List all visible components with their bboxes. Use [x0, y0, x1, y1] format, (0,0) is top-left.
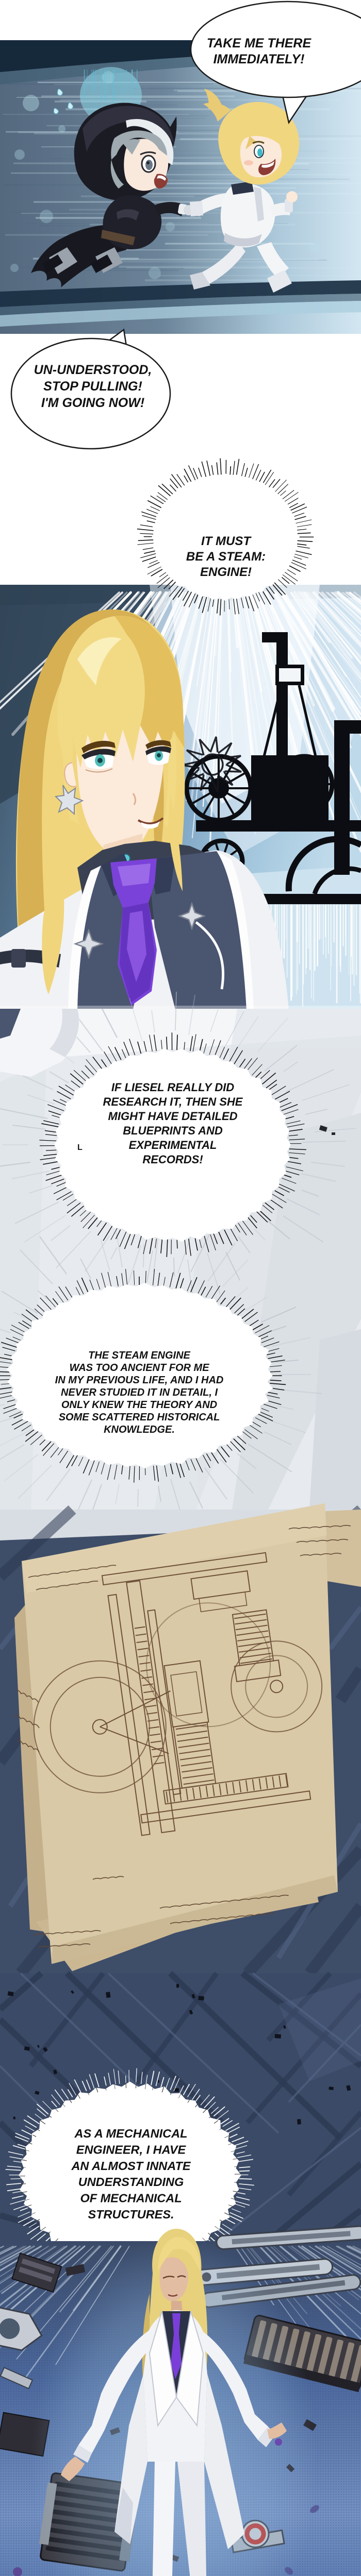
svg-text:RECORDS!: RECORDS!: [142, 1153, 203, 1166]
svg-text:I'M GOING NOW!: I'M GOING NOW!: [41, 396, 144, 410]
svg-text:L: L: [77, 1143, 83, 1152]
svg-text:THE STEAM ENGINE: THE STEAM ENGINE: [88, 1350, 190, 1361]
svg-text:IT MUST: IT MUST: [201, 534, 252, 548]
svg-text:ENGINEER, I HAVE: ENGINEER, I HAVE: [76, 2143, 187, 2156]
svg-text:MIGHT HAVE DETAILED: MIGHT HAVE DETAILED: [108, 1110, 238, 1123]
svg-text:RESEARCH IT, THEN SHE: RESEARCH IT, THEN SHE: [103, 1095, 243, 1108]
svg-text:IF LIESEL REALLY DID: IF LIESEL REALLY DID: [111, 1081, 234, 1094]
svg-text:STOP PULLING!: STOP PULLING!: [43, 379, 142, 394]
svg-text:AN ALMOST INNATE: AN ALMOST INNATE: [71, 2159, 191, 2173]
svg-text:EXPERIMENTAL: EXPERIMENTAL: [129, 1139, 217, 1151]
svg-text:UNDERSTANDING: UNDERSTANDING: [78, 2175, 184, 2189]
svg-text:TAKE ME THERE: TAKE ME THERE: [207, 36, 312, 50]
svg-text:AS A MECHANICAL: AS A MECHANICAL: [74, 2127, 188, 2140]
svg-text:BLUEPRINTS AND: BLUEPRINTS AND: [123, 1124, 223, 1137]
svg-text:NEVER STUDIED IT IN DETAIL, I: NEVER STUDIED IT IN DETAIL, I: [61, 1387, 218, 1398]
svg-text:KNOWLEDGE.: KNOWLEDGE.: [104, 1424, 175, 1435]
svg-text:IN MY PREVIOUS LIFE, AND I HAD: IN MY PREVIOUS LIFE, AND I HAD: [55, 1375, 224, 1386]
svg-text:UN-UNDERSTOOD,: UN-UNDERSTOOD,: [34, 363, 152, 377]
svg-text:IMMEDIATELY!: IMMEDIATELY!: [214, 52, 305, 66]
svg-text:STRUCTURES.: STRUCTURES.: [88, 2208, 174, 2221]
svg-text:ENGINE!: ENGINE!: [200, 565, 252, 579]
svg-text:WAS TOO ANCIENT FOR ME: WAS TOO ANCIENT FOR ME: [69, 1362, 209, 1374]
svg-text:ONLY KNEW THE THEORY AND: ONLY KNEW THE THEORY AND: [61, 1399, 217, 1411]
svg-text:BE A STEAM:: BE A STEAM:: [186, 550, 266, 564]
svg-text:SOME SCATTERED HISTORICAL: SOME SCATTERED HISTORICAL: [59, 1412, 220, 1423]
svg-text:OF MECHANICAL: OF MECHANICAL: [80, 2192, 182, 2205]
